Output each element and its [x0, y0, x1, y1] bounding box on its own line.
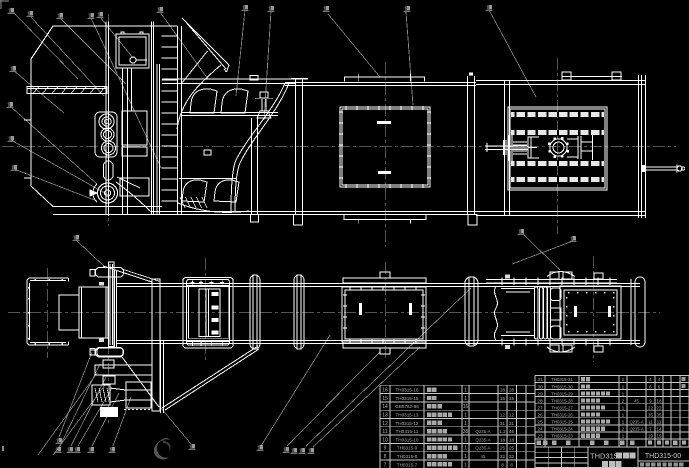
svg-text:2: 2: [622, 427, 625, 433]
svg-text:25: 25: [500, 446, 506, 451]
svg-text:THD315: THD315: [590, 452, 618, 461]
svg-text:9: 9: [384, 446, 387, 452]
svg-text:Q235-A: Q235-A: [475, 446, 490, 451]
svg-text:15: 15: [509, 396, 515, 401]
svg-text:TH0315-25: TH0315-25: [551, 420, 573, 425]
svg-text:16: 16: [382, 388, 388, 394]
svg-text:GB5782-86: GB5782-86: [395, 404, 419, 409]
svg-text:26: 26: [537, 412, 543, 418]
svg-text:11: 11: [648, 420, 653, 425]
svg-text:TH0315-24: TH0315-24: [551, 427, 573, 432]
svg-text:25: 25: [509, 446, 515, 451]
svg-text:Q235-A: Q235-A: [475, 429, 490, 434]
svg-text:Q235-A: Q235-A: [629, 427, 643, 432]
svg-text:1: 1: [464, 437, 467, 443]
svg-text:12: 12: [500, 413, 506, 418]
svg-text:15: 15: [382, 396, 388, 402]
svg-text:TH0315-7: TH0315-7: [397, 462, 418, 467]
svg-text:Q235-A: Q235-A: [629, 420, 643, 425]
svg-text:1: 1: [464, 462, 467, 468]
svg-text:8: 8: [501, 462, 504, 467]
svg-text:19: 19: [648, 434, 653, 439]
svg-text:1: 1: [622, 377, 625, 383]
svg-text:8: 8: [384, 454, 387, 460]
svg-text:TH0315-11: TH0315-11: [396, 429, 419, 434]
svg-text:28: 28: [500, 388, 506, 393]
svg-text:1: 1: [622, 420, 625, 426]
svg-text:1: 1: [464, 454, 467, 460]
svg-text:Q235-A: Q235-A: [475, 437, 490, 442]
svg-text:1: 1: [622, 384, 625, 390]
svg-text:12: 12: [382, 421, 388, 427]
svg-text:22: 22: [657, 405, 662, 410]
svg-text:13: 13: [382, 413, 388, 419]
svg-text:31: 31: [500, 421, 506, 426]
svg-text:TH0315-23: TH0315-23: [551, 434, 573, 439]
svg-text:11: 11: [382, 429, 387, 435]
svg-text:TH0315-29: TH0315-29: [551, 391, 573, 396]
svg-text:25: 25: [537, 420, 543, 426]
svg-text:1: 1: [622, 434, 625, 440]
svg-text:31: 31: [537, 377, 543, 383]
svg-text:29: 29: [537, 391, 543, 397]
svg-text:TH0315-12: TH0315-12: [396, 421, 419, 426]
svg-text:14: 14: [382, 404, 388, 410]
svg-text:28: 28: [537, 398, 543, 404]
svg-text:31: 31: [509, 421, 515, 426]
svg-text:45: 45: [481, 454, 486, 459]
svg-text:1: 1: [464, 421, 467, 427]
svg-text:14: 14: [657, 427, 662, 432]
svg-text:TH0315-31: TH0315-31: [551, 377, 573, 382]
svg-text:1: 1: [622, 412, 625, 418]
svg-text:32: 32: [509, 454, 515, 459]
svg-text:1: 1: [464, 413, 467, 419]
svg-text:46: 46: [509, 429, 515, 434]
svg-text:1: 1: [622, 391, 625, 397]
svg-text:1: 1: [464, 388, 467, 394]
svg-text:22: 22: [648, 405, 653, 410]
svg-text:32: 32: [500, 454, 506, 459]
svg-text:TH0315-26: TH0315-26: [551, 412, 573, 417]
svg-text:7: 7: [384, 462, 387, 468]
svg-text:19: 19: [657, 434, 662, 439]
svg-text:1: 1: [622, 405, 625, 411]
svg-text:1: 1: [464, 396, 467, 402]
svg-text:18: 18: [509, 437, 515, 442]
svg-text:TH0315-27: TH0315-27: [551, 405, 573, 410]
svg-text:THD315-00: THD315-00: [645, 453, 681, 460]
svg-text:11: 11: [657, 420, 662, 425]
svg-text:TH0315-30: TH0315-30: [551, 384, 573, 389]
svg-text:30: 30: [537, 384, 543, 390]
svg-text:18: 18: [657, 398, 662, 403]
svg-text:18: 18: [500, 437, 506, 442]
svg-text:1: 1: [464, 446, 467, 452]
svg-text:38: 38: [463, 429, 469, 435]
svg-text:10: 10: [382, 437, 388, 443]
svg-text:TH0315-28: TH0315-28: [551, 398, 573, 403]
svg-text:1.2: 1.2: [499, 429, 506, 434]
svg-text:TH0315-13: TH0315-13: [396, 413, 419, 418]
svg-text:35: 35: [657, 412, 662, 417]
svg-text:28: 28: [509, 388, 515, 393]
svg-text:24: 24: [537, 427, 543, 433]
svg-text:12: 12: [509, 413, 515, 418]
svg-text:23: 23: [537, 434, 543, 440]
svg-text:35: 35: [648, 412, 653, 417]
svg-text:15: 15: [500, 396, 506, 401]
svg-text:TH0315-16: TH0315-16: [396, 388, 419, 393]
svg-text:TH0315-9: TH0315-9: [397, 446, 418, 451]
svg-text:27: 27: [537, 405, 543, 411]
svg-text:45: 45: [634, 398, 639, 403]
svg-text:2: 2: [622, 398, 625, 404]
svg-text:TH0315-10: TH0315-10: [396, 437, 419, 442]
svg-text:8: 8: [510, 462, 513, 467]
svg-text:TH0315-8: TH0315-8: [397, 454, 418, 459]
svg-text:TH0315-15: TH0315-15: [396, 396, 419, 401]
svg-text:16: 16: [463, 404, 469, 410]
